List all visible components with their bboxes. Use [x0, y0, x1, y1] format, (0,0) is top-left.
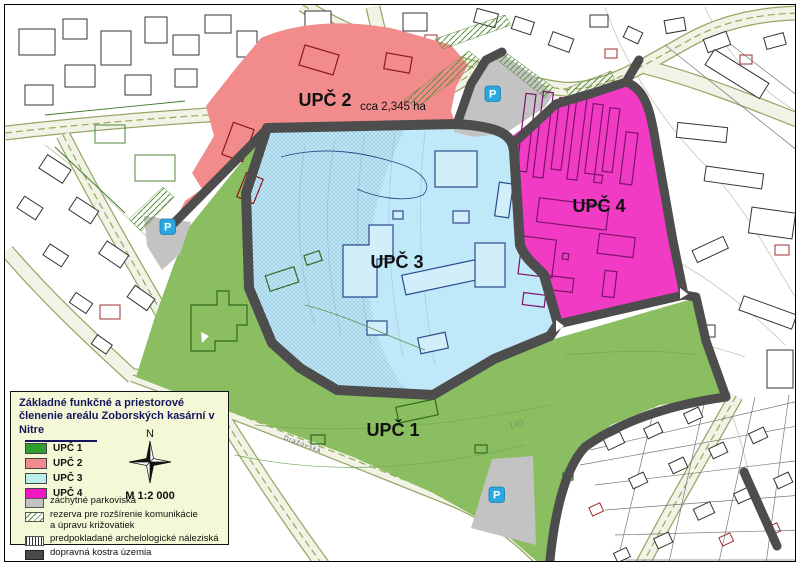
legend-box: Základné funkčné a priestorové členenie … [10, 391, 229, 545]
archaeology-swatch [25, 536, 44, 546]
road-reserve-swatch [25, 512, 44, 522]
zone1-legend-label: UPČ 1 [53, 443, 82, 454]
legend-title-line1: Základné funkčné a priestorové [19, 397, 220, 410]
legend-zone-row: UPČ 2 [25, 458, 82, 469]
svg-text:P: P [493, 490, 500, 502]
legend-title-underline [25, 440, 97, 442]
zone2-swatch [25, 458, 47, 469]
road-reserve-line2: a úpravu križovatiek [50, 520, 134, 531]
zone-upc3-label: UPČ 3 [370, 251, 423, 272]
legend-item-roads: dopravná kostra územia [25, 548, 225, 560]
zone2-legend-label: UPČ 2 [53, 458, 82, 469]
zone3-legend-label: UPČ 3 [53, 473, 82, 484]
legend-zone-row: UPČ 1 [25, 443, 82, 454]
parking-icon-top: P [485, 86, 501, 102]
road-skeleton-item-label: dopravná kostra územia [50, 548, 151, 559]
archaeology-item-label: predpokladané archelologické náleziská [50, 534, 218, 545]
svg-text:P: P [489, 89, 496, 101]
parking-icon-west: P [160, 219, 176, 235]
legend-item-parking: záchytné parkoviská [25, 496, 225, 508]
legend-zone-list: UPČ 1 UPČ 2 UPČ 3 UPČ 4 [25, 443, 82, 503]
map-page: UPČ 2 cca 2,345 ha UPČ 3 UPČ 4 UPČ 1 Dra… [0, 0, 800, 566]
zone3-swatch [25, 473, 47, 484]
road-skeleton-swatch [25, 550, 44, 560]
legend-zone-row: UPČ 3 [25, 473, 82, 484]
legend-item-list: záchytné parkoviská rezerva pre rozšíren… [25, 496, 225, 562]
area-note-label: cca 2,345 ha [360, 101, 426, 113]
svg-text:P: P [164, 222, 171, 234]
legend-item-reserve: rezerva pre rozšírenie komunikácie a úpr… [25, 510, 225, 532]
compass-north-label: N [107, 428, 193, 440]
parking-swatch [25, 498, 44, 508]
zone1-swatch [25, 443, 47, 454]
zone-upc4-label: UPČ 4 [572, 195, 625, 216]
parking-icon-south: P [489, 487, 505, 503]
compass-block: N M 1:2 000 [107, 428, 193, 502]
zone-upc2-label: UPČ 2 [298, 89, 351, 110]
zone-upc1-label: UPČ 1 [366, 419, 419, 440]
compass-rose-icon [126, 440, 174, 484]
road-reserve-line1: rezerva pre rozšírenie komunikácie [50, 509, 198, 520]
parking-item-label: záchytné parkoviská [50, 496, 136, 507]
road-reserve-item-label: rezerva pre rozšírenie komunikácie a úpr… [50, 510, 198, 532]
legend-item-archaeology: predpokladané archelologické náleziská [25, 534, 225, 546]
